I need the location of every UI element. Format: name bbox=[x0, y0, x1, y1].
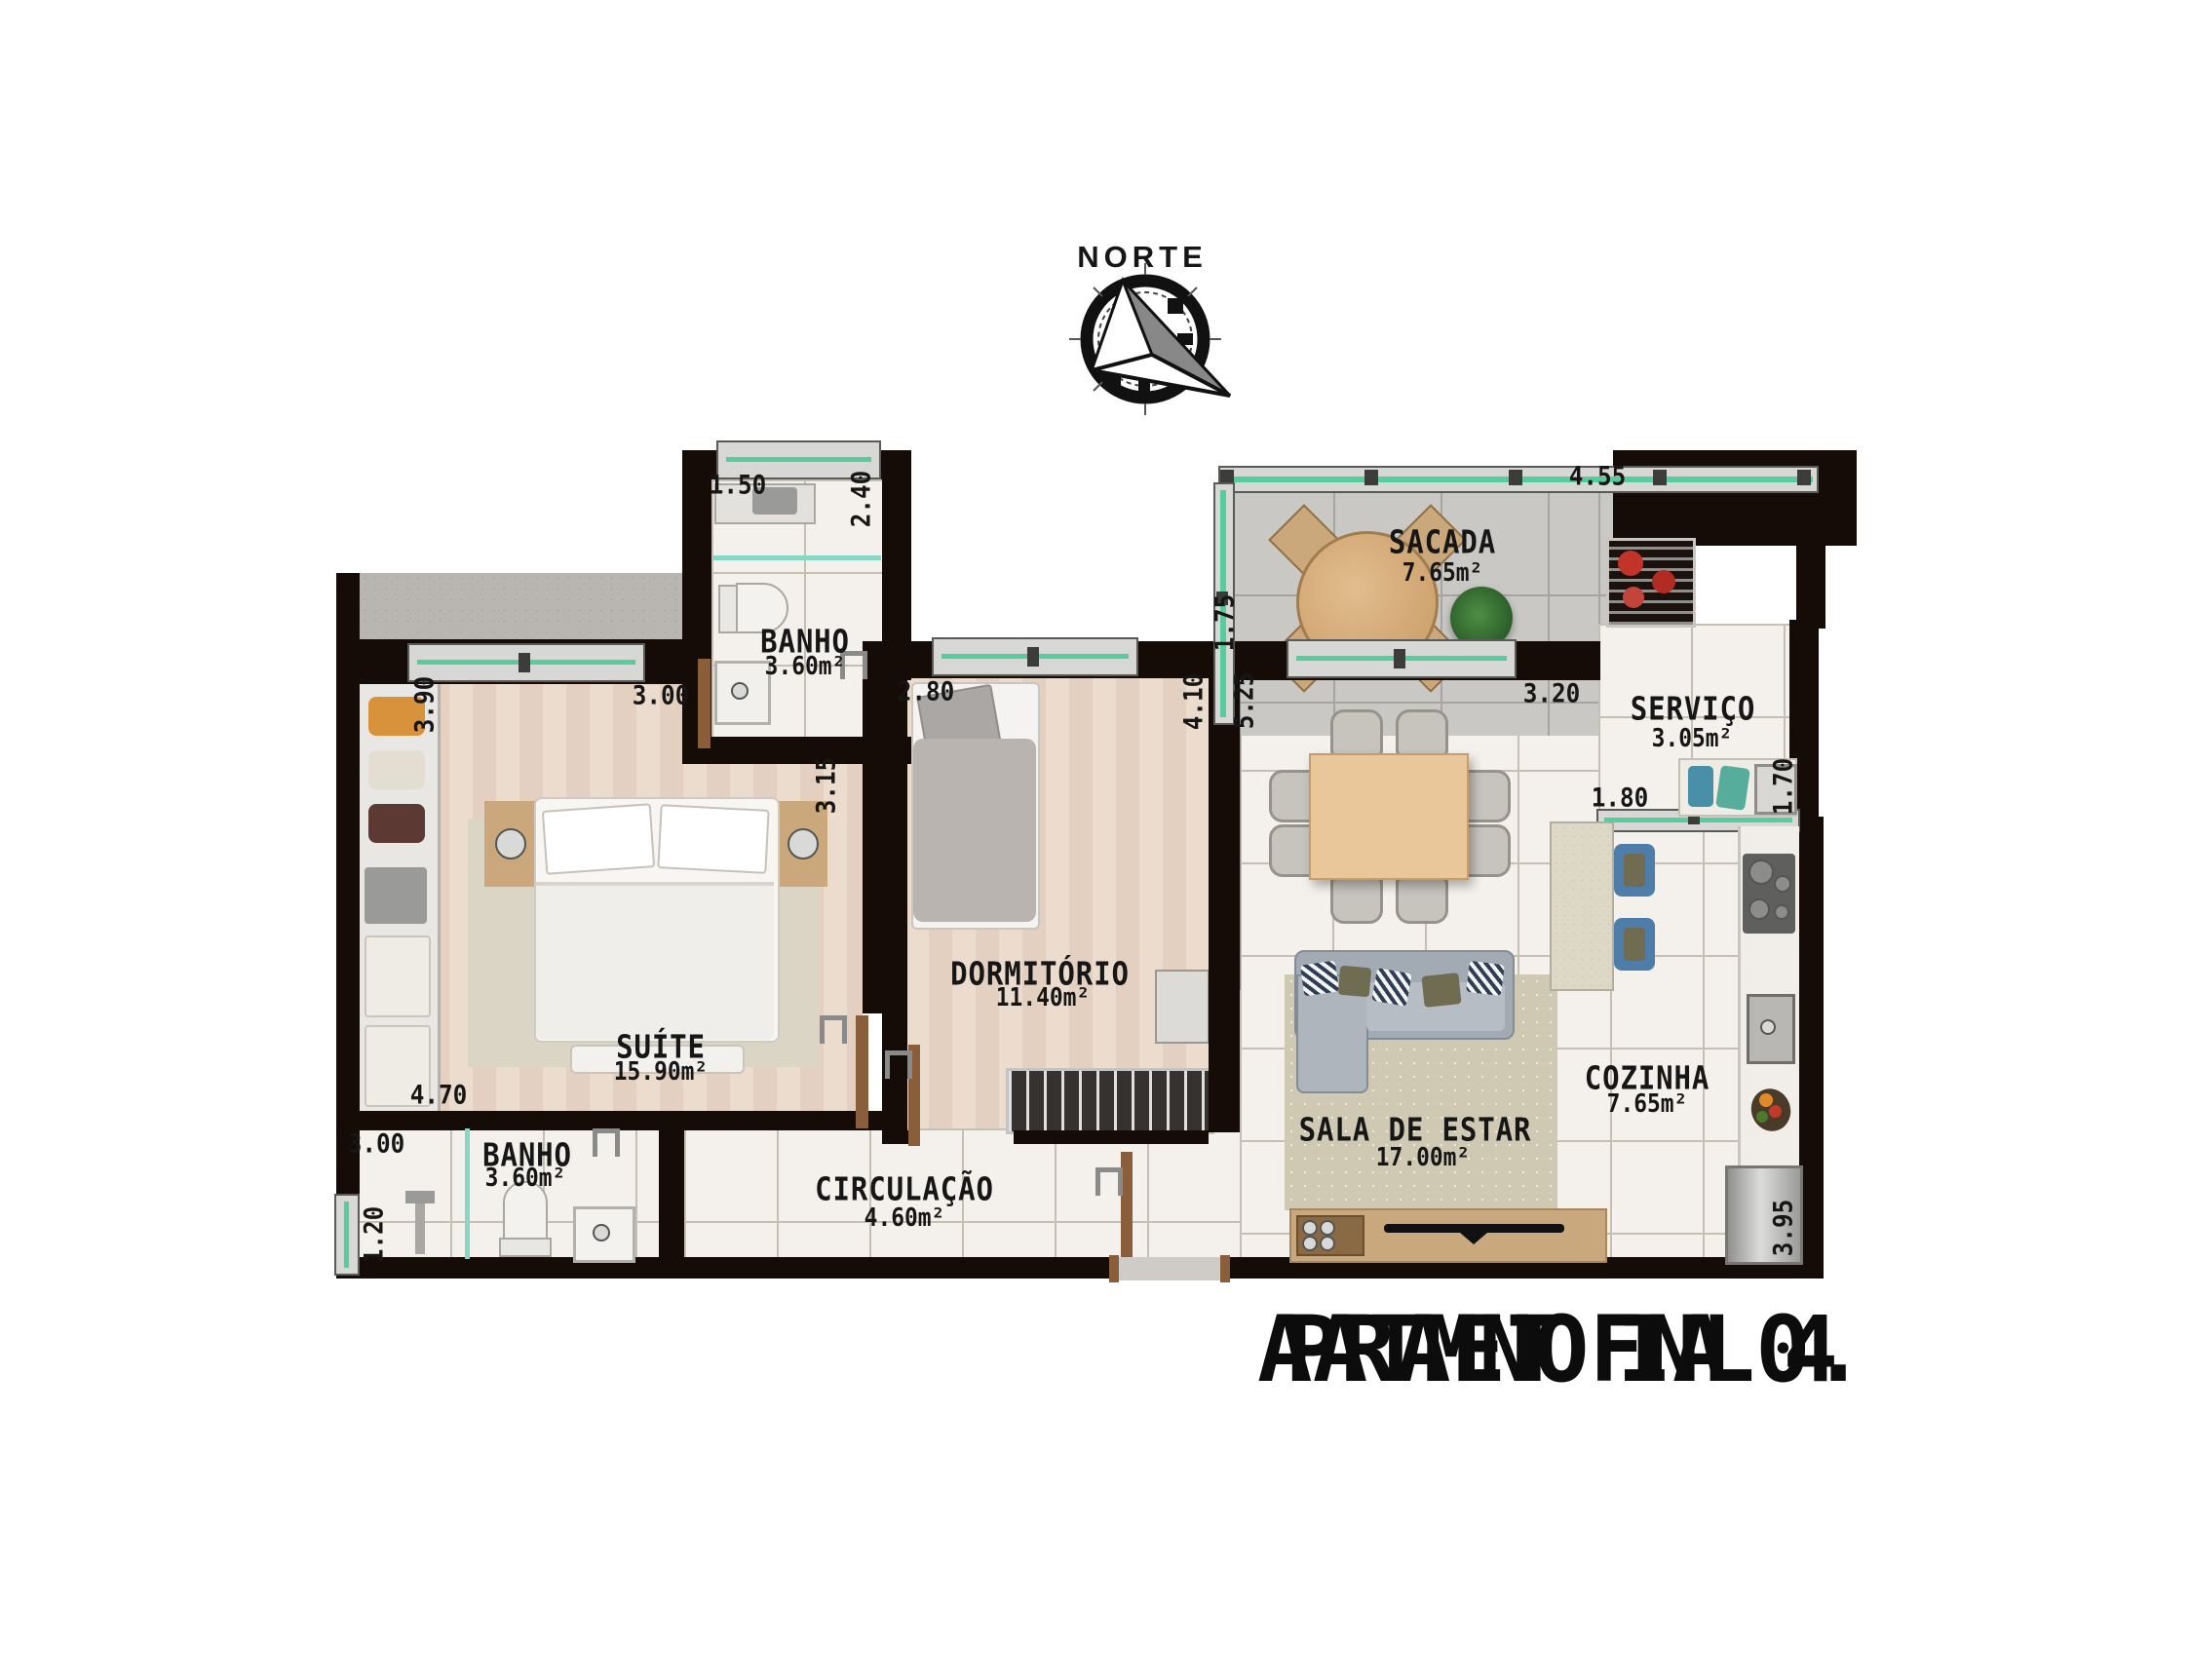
dim-banho-social-h: 1.20 bbox=[360, 1206, 390, 1264]
entry-jamb-left bbox=[1109, 1255, 1119, 1282]
barbecue-meat-3 bbox=[1623, 587, 1644, 608]
dorm-duvet bbox=[913, 739, 1036, 922]
wall-dorm-circ-right bbox=[1014, 1130, 1209, 1144]
sofa-pillow-olive-2 bbox=[1421, 973, 1461, 1008]
dim-suite-top: 3.00 bbox=[633, 681, 690, 711]
banho-suite-door bbox=[698, 659, 711, 748]
wall-right-upper bbox=[1796, 546, 1825, 629]
banho-suite-area: 3.60m² bbox=[765, 652, 846, 681]
stool-cushion bbox=[1624, 854, 1645, 887]
dim-banho-suite-h: 2.40 bbox=[847, 471, 877, 528]
suite-area: 15.90m² bbox=[614, 1057, 708, 1087]
wall-top-right-block bbox=[1613, 450, 1857, 546]
fruit-red bbox=[1769, 1105, 1782, 1118]
wall-dorm-circ-left bbox=[882, 1130, 911, 1144]
sala-sacada-window bbox=[1287, 639, 1517, 678]
wall-bottom-left bbox=[336, 1257, 1116, 1279]
barbecue-meat bbox=[1618, 551, 1643, 576]
banho-social-toilet-tank bbox=[499, 1238, 552, 1257]
circulacao-label: CIRCULAÇÃO bbox=[815, 1170, 994, 1208]
sacada-railing-top bbox=[1218, 466, 1819, 493]
dining-chair bbox=[1330, 709, 1383, 758]
dim-suite-bottom: 4.70 bbox=[410, 1081, 468, 1111]
banho-social-glass bbox=[465, 1128, 470, 1259]
media-knob-2 bbox=[1320, 1220, 1335, 1236]
fruit-green bbox=[1756, 1111, 1768, 1123]
banho-social-shower-pole bbox=[415, 1203, 425, 1254]
suite-lamp-left bbox=[495, 828, 526, 859]
wall-banho-social-circ bbox=[659, 1126, 684, 1259]
dormitorio-window bbox=[932, 637, 1138, 676]
media-knob-4 bbox=[1320, 1236, 1335, 1251]
barbecue-grill bbox=[1606, 538, 1696, 628]
banho-social-door-handle bbox=[593, 1128, 620, 1157]
sofa-pillow-chevron-2 bbox=[1371, 968, 1411, 1007]
closet-towels bbox=[365, 935, 431, 1017]
wall-suite-banho-social bbox=[356, 1111, 887, 1130]
closet-shoes-3 bbox=[368, 804, 425, 843]
exterior-concrete bbox=[360, 573, 689, 641]
banho-social-shower-head bbox=[405, 1191, 435, 1203]
dim-servico-w: 1.80 bbox=[1592, 783, 1649, 814]
tv-stand bbox=[1460, 1233, 1487, 1244]
media-knob-3 bbox=[1302, 1236, 1318, 1251]
servico-label: SERVIÇO bbox=[1631, 690, 1756, 728]
circulacao-area: 4.60m² bbox=[864, 1203, 945, 1233]
tv-screen bbox=[1384, 1224, 1564, 1233]
entry-jamb-right bbox=[1220, 1255, 1230, 1282]
dim-servico-h: 1.70 bbox=[1769, 758, 1799, 816]
suite-pillow-right bbox=[657, 804, 769, 874]
sofa-pillow-chevron-3 bbox=[1466, 961, 1505, 996]
cooktop-burner-2 bbox=[1774, 875, 1791, 893]
banho-social-faucet bbox=[593, 1224, 610, 1241]
cozinha-area: 7.65m² bbox=[1607, 1089, 1688, 1119]
dim-sacada-left: 1.75 bbox=[1210, 594, 1241, 652]
dim-banho-social-w: 3.00 bbox=[348, 1129, 405, 1160]
fruit-orange bbox=[1759, 1093, 1773, 1107]
dim-cozinha-right: 3.95 bbox=[1769, 1200, 1799, 1257]
servico-laundry-blue bbox=[1688, 766, 1713, 807]
dim-suite-left: 3.90 bbox=[410, 676, 441, 734]
kitchen-sink-drain bbox=[1760, 1019, 1776, 1035]
dining-chair bbox=[1462, 824, 1511, 877]
plan-title: APARTAMENTO FINAL 04. bbox=[1257, 1317, 1838, 1384]
media-knob bbox=[1302, 1220, 1318, 1236]
dim-sala-top: 3.20 bbox=[1523, 679, 1581, 709]
dim-suite-right: 3.15 bbox=[812, 757, 842, 815]
sala-area: 17.00m² bbox=[1376, 1143, 1470, 1172]
suite-door-handle bbox=[820, 1015, 847, 1044]
dining-table bbox=[1309, 753, 1469, 880]
suite-duvet bbox=[536, 882, 774, 1040]
sacada-label: SACADA bbox=[1389, 523, 1496, 561]
stool-cushion-2 bbox=[1624, 928, 1645, 961]
suite-lamp-right bbox=[788, 828, 819, 859]
dim-sacada-top: 4.55 bbox=[1569, 462, 1627, 492]
suite-door bbox=[856, 1015, 868, 1128]
dim-sala-left: 5.25 bbox=[1230, 672, 1260, 730]
sofa-pillow-olive bbox=[1338, 966, 1371, 998]
kitchen-island bbox=[1550, 821, 1614, 991]
dining-chair bbox=[1396, 875, 1448, 924]
dim-banho-suite-w: 1.50 bbox=[710, 471, 767, 501]
dim-dorm-top: 2.80 bbox=[898, 677, 955, 707]
entry-floor bbox=[1116, 1257, 1223, 1280]
dormitorio-area: 11.40m² bbox=[996, 983, 1090, 1012]
floor-plan: NORTE SACADA 7.65m² SERVIÇO 3.05m² BANHO… bbox=[0, 0, 2190, 1680]
sacada-area: 7.65m² bbox=[1402, 558, 1483, 588]
suite-window bbox=[407, 643, 645, 682]
dining-chair bbox=[1396, 709, 1448, 758]
closet-folded-clothes bbox=[365, 867, 427, 924]
dining-chair bbox=[1330, 875, 1383, 924]
banho-suite-shower-glass bbox=[713, 555, 881, 560]
banho-suite-toilet-tank bbox=[718, 585, 738, 633]
dormitorio-door-handle bbox=[885, 1050, 912, 1079]
dining-chair bbox=[1462, 770, 1511, 822]
banho-social-window bbox=[334, 1194, 360, 1276]
servico-laundry-teal bbox=[1715, 765, 1750, 811]
cooktop-burner bbox=[1748, 859, 1774, 885]
suite-pillow-left bbox=[542, 803, 655, 875]
dorm-dresser bbox=[1155, 970, 1210, 1044]
wall-servico-left-stub bbox=[1559, 653, 1600, 676]
banho-suite-drain bbox=[731, 682, 749, 700]
cooktop-burner-4 bbox=[1774, 904, 1789, 920]
cooktop-burner-3 bbox=[1748, 898, 1770, 920]
sofa-pillow-chevron bbox=[1300, 961, 1339, 997]
entry-door-handle bbox=[1095, 1167, 1123, 1196]
servico-area: 3.05m² bbox=[1652, 724, 1733, 753]
closet-shoes-2 bbox=[368, 750, 425, 789]
banho-social-area: 3.60m² bbox=[485, 1164, 566, 1193]
barbecue-meat-2 bbox=[1652, 570, 1675, 593]
dorm-wardrobe bbox=[1006, 1068, 1214, 1134]
compass-rose-icon bbox=[1062, 261, 1243, 422]
dim-dorm-right: 4.10 bbox=[1179, 673, 1210, 731]
